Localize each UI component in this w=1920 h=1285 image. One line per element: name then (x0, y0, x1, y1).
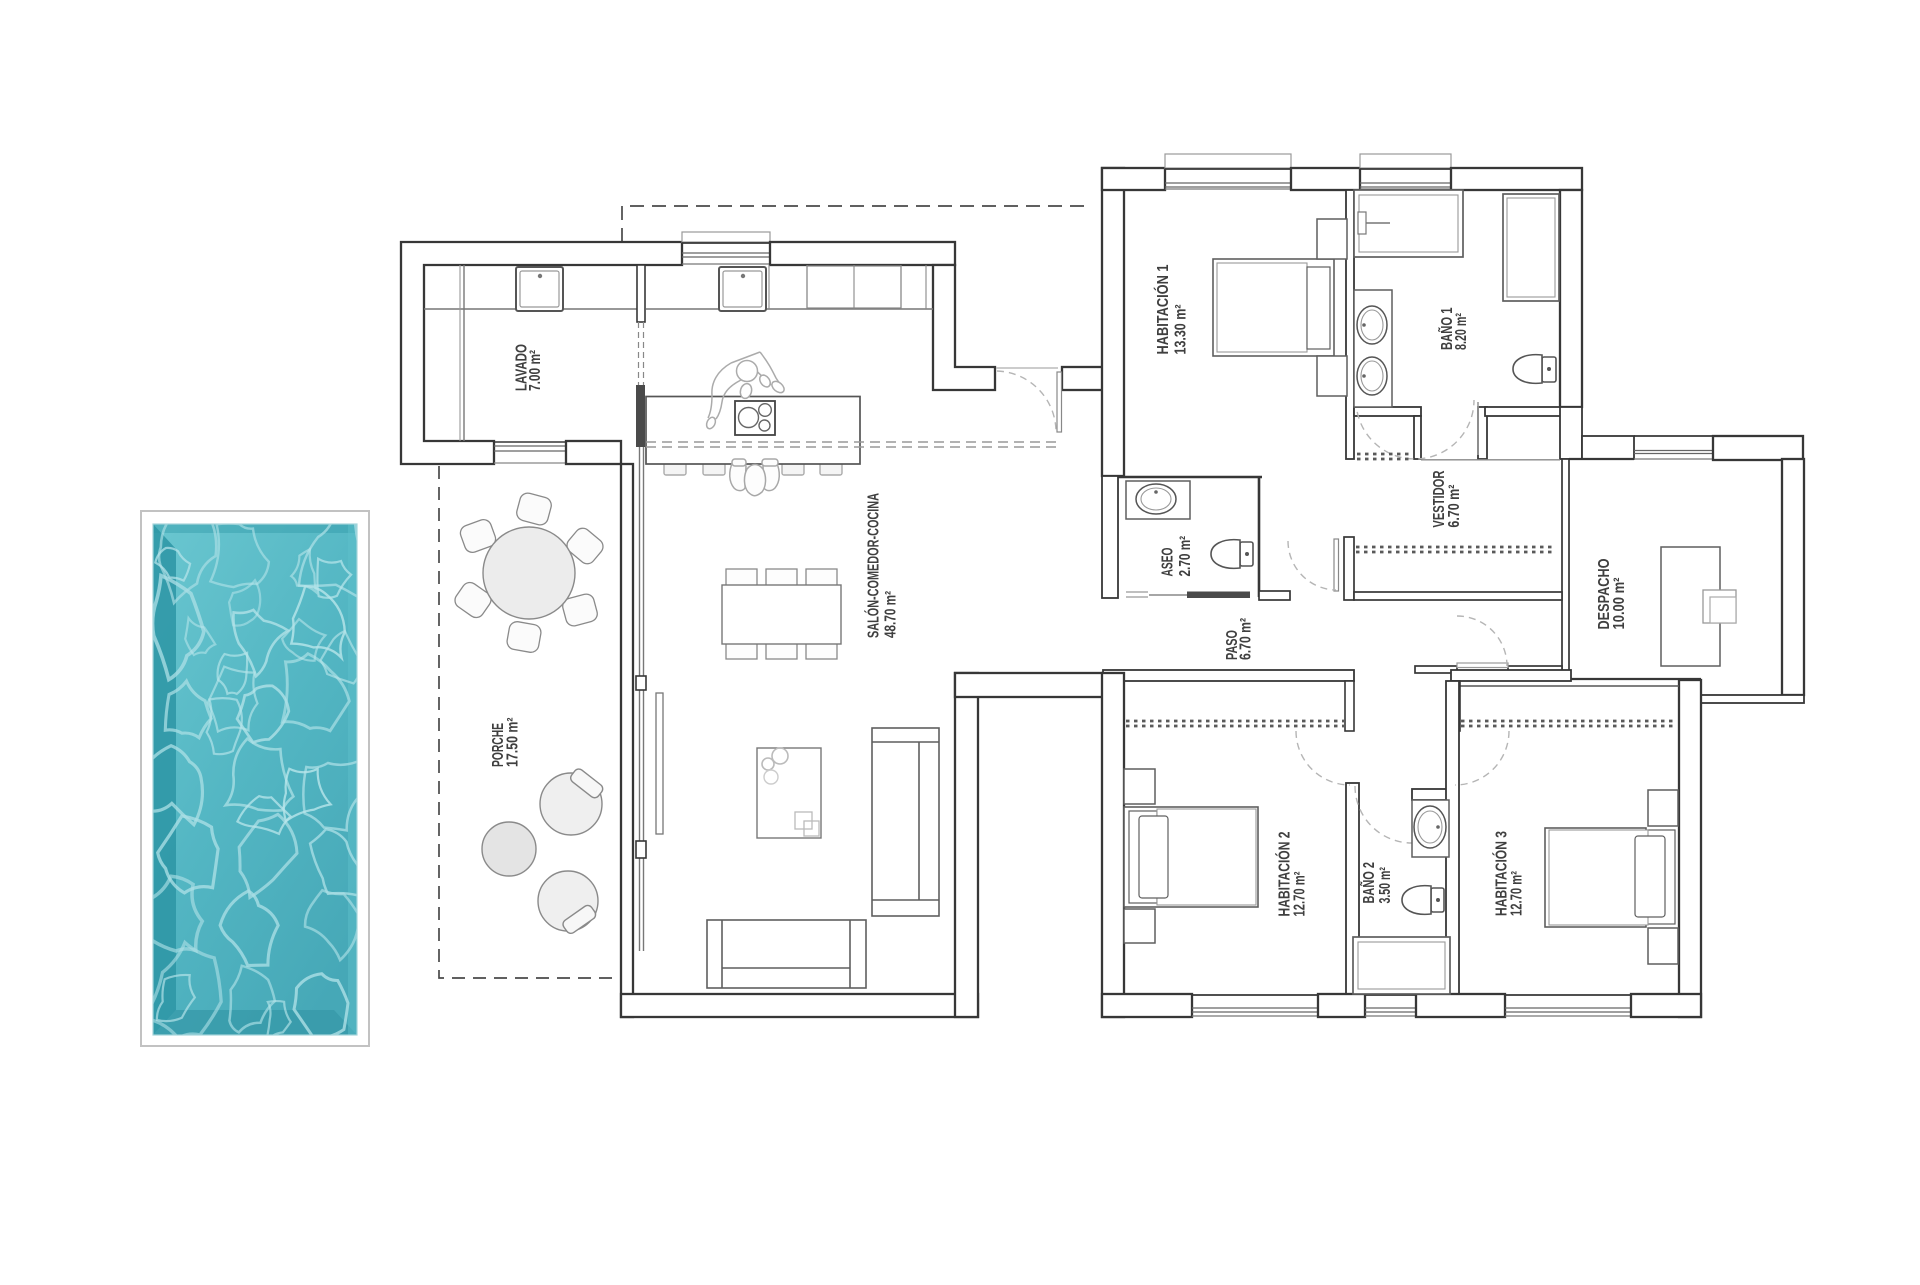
svg-text:10.00 m²: 10.00 m² (1611, 578, 1628, 630)
svg-text:48.70 m²: 48.70 m² (883, 591, 900, 638)
svg-text:3.50 m²: 3.50 m² (1377, 867, 1394, 903)
svg-text:6.70 m²: 6.70 m² (1238, 618, 1255, 660)
svg-text:7.00 m²: 7.00 m² (527, 350, 544, 391)
svg-text:BAÑO 2: BAÑO 2 (1360, 862, 1378, 904)
svg-text:2.70 m²: 2.70 m² (1177, 536, 1194, 577)
svg-text:12.70 m²: 12.70 m² (1291, 872, 1308, 917)
svg-text:13.30 m²: 13.30 m² (1172, 305, 1189, 355)
svg-text:17.50 m²: 17.50 m² (504, 718, 521, 768)
svg-text:6.70 m²: 6.70 m² (1446, 485, 1463, 528)
svg-text:12.70 m²: 12.70 m² (1509, 871, 1526, 916)
svg-text:HABITACIÓN 1: HABITACIÓN 1 (1154, 264, 1172, 354)
svg-text:SALÓN-COMEDOR-COCINA: SALÓN-COMEDOR-COCINA (865, 493, 883, 638)
svg-text:8.20 m²: 8.20 m² (1453, 313, 1470, 350)
svg-text:ASEO: ASEO (1160, 548, 1177, 577)
